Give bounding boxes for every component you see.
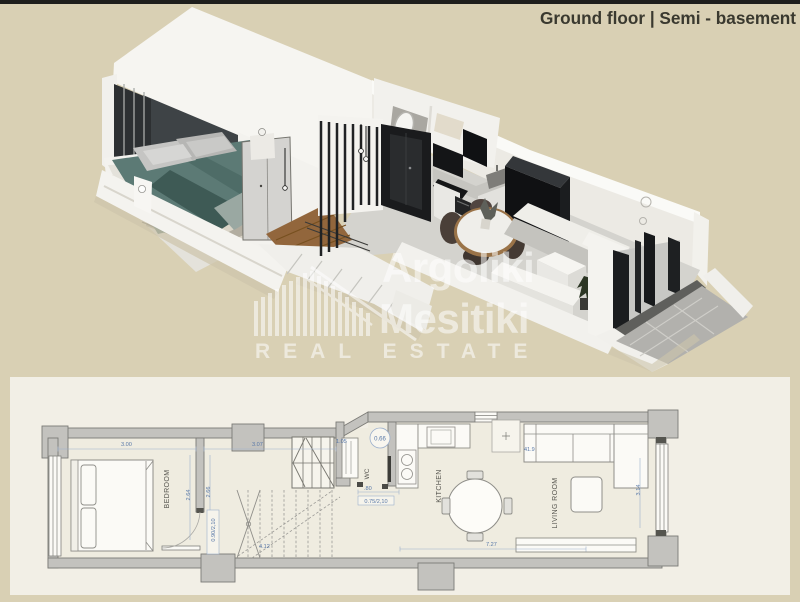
svg-text:.80: .80	[364, 486, 372, 492]
svg-text:2.64: 2.64	[186, 490, 192, 501]
svg-text:REAL ESTATE: REAL ESTATE	[255, 340, 540, 363]
svg-text:0.66: 0.66	[374, 437, 386, 443]
svg-text:LIVING ROOM: LIVING ROOM	[552, 477, 559, 528]
svg-text:3.00: 3.00	[121, 442, 132, 448]
svg-text:KITCHEN: KITCHEN	[436, 469, 443, 503]
svg-text:0.90/2,10: 0.90/2,10	[211, 518, 217, 541]
svg-text:3.14: 3.14	[636, 485, 642, 496]
svg-text:3.07: 3.07	[252, 442, 263, 448]
svg-text:Ground floor | Semi - basement: Ground floor | Semi - basement	[540, 8, 796, 28]
svg-text:41.9: 41.9	[524, 447, 535, 453]
svg-text:2.66: 2.66	[206, 487, 212, 498]
svg-text:BEDROOM: BEDROOM	[164, 470, 171, 509]
svg-text:7.27: 7.27	[486, 542, 497, 548]
svg-text:0.75/2,10: 0.75/2,10	[364, 499, 387, 505]
svg-text:Argoliki: Argoliki	[382, 244, 534, 291]
svg-text:4.12: 4.12	[259, 544, 270, 550]
svg-text:Mesitiki: Mesitiki	[379, 295, 529, 342]
svg-text:WC: WC	[364, 468, 371, 479]
svg-text:1.05: 1.05	[336, 439, 347, 445]
